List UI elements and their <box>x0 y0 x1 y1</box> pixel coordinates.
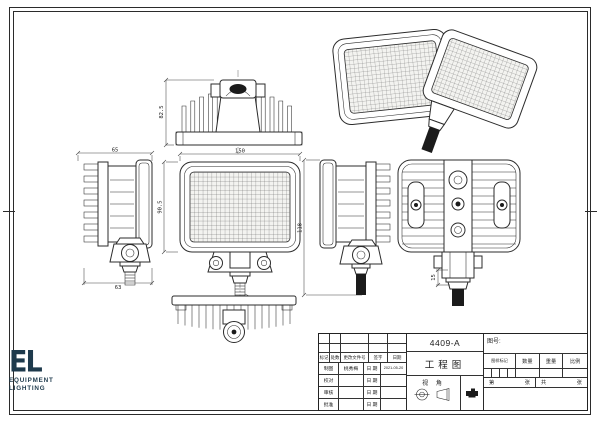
empty-cell <box>484 388 587 410</box>
drawing-sheet: 82.5 <box>0 0 600 424</box>
sheet-label-zhang: 张 <box>525 379 530 386</box>
sign-date-label: 日 期 <box>364 387 381 399</box>
info-quantity: 数量 <box>516 354 540 368</box>
dim-top-view-height: 82.5 <box>159 105 165 118</box>
sign-date-label: 日 期 <box>364 399 381 410</box>
sign-date <box>381 399 406 410</box>
centering-mark <box>585 211 597 212</box>
revision-table: 标记 处数 更改文件号 签字 日期 制图 桃秀梅 日 期 2021-05-20 … <box>319 334 407 410</box>
doc-type: 工程图 <box>407 352 483 376</box>
sign-role: 校对 <box>319 375 339 387</box>
side-view-left-drawing: 65 63 <box>58 146 163 290</box>
top-view-drawing: 82.5 <box>156 24 306 160</box>
view-angle-label: 视 角 <box>422 378 445 387</box>
rev-header-mark: 标记 <box>319 353 330 363</box>
sign-name: 桃秀梅 <box>339 363 364 375</box>
dim-front-height: 90.5 <box>158 200 164 213</box>
dim-side-base: 63 <box>115 285 122 291</box>
sign-name <box>339 399 364 410</box>
sign-name <box>339 375 364 387</box>
stage-mark-cells <box>484 369 587 378</box>
drawing-no-label: 图号: <box>484 334 587 354</box>
info-stage-mark: 图样标记 <box>484 354 516 368</box>
approval-stamp-icon <box>465 387 479 399</box>
dim-side-width: 65 <box>112 148 119 154</box>
sign-date: 2021-05-20 <box>381 363 406 375</box>
projection-symbols <box>412 387 456 402</box>
dim-overall-height: 118 <box>298 223 304 233</box>
el-logo: EL EQUIPMENT LIGHTING <box>9 351 71 392</box>
sign-date <box>381 387 406 399</box>
sheet-label-gong: 共 <box>541 379 546 386</box>
rev-header-sign: 签字 <box>369 353 388 363</box>
sign-role: 批准 <box>319 399 339 410</box>
logo-monogram: EL <box>9 349 71 377</box>
rev-header-doc: 更改文件号 <box>341 353 369 363</box>
info-weight: 重量 <box>540 354 564 368</box>
centering-mark <box>3 211 15 212</box>
sign-date <box>381 375 406 387</box>
logo-line2: LIGHTING <box>9 385 71 393</box>
rev-header-date: 日期 <box>388 353 406 363</box>
sign-name <box>339 387 364 399</box>
sheet-label-di: 第 <box>489 379 494 386</box>
sign-date-label: 日 期 <box>364 375 381 387</box>
back-view-drawing: 15 <box>390 144 530 310</box>
sheet-label-zhang2: 张 <box>577 379 582 386</box>
sheet-row: 第 张 共 张 <box>484 378 587 388</box>
dim-front-width: 150 <box>235 149 245 155</box>
sign-role: 审核 <box>319 387 339 399</box>
rev-header-count: 处数 <box>330 353 341 363</box>
part-number: 4409-A <box>407 334 483 352</box>
dim-stud-length: 15 <box>431 274 437 281</box>
info-scale: 比例 <box>563 354 587 368</box>
bottom-view-drawing <box>164 290 304 352</box>
sign-role: 制图 <box>319 363 339 375</box>
sign-date-label: 日 期 <box>364 363 381 375</box>
title-block: 标记 处数 更改文件号 签字 日期 制图 桃秀梅 日 期 2021-05-20 … <box>318 333 588 411</box>
front-view-drawing: 150 90.5 M10 <box>150 146 312 302</box>
